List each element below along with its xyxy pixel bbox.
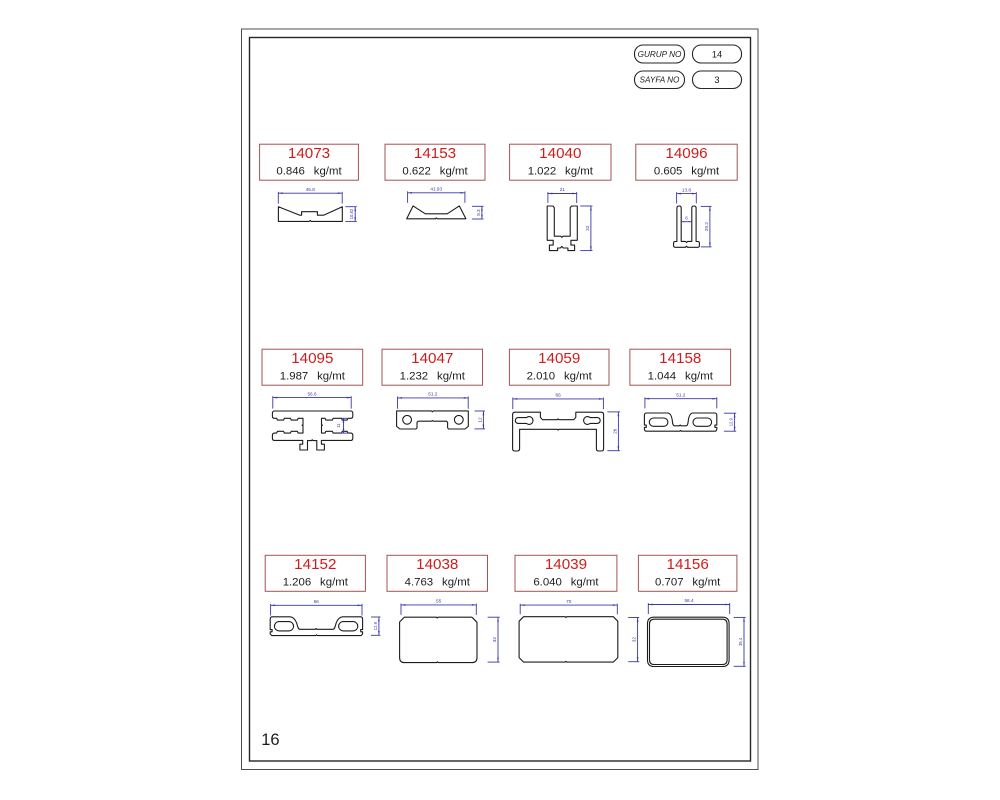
svg-text:0.707 kg/mt: 0.707 kg/mt	[655, 576, 721, 588]
svg-text:32: 32	[585, 225, 590, 231]
svg-text:14059: 14059	[538, 350, 580, 367]
svg-text:66: 66	[555, 393, 561, 398]
svg-text:32: 32	[492, 637, 497, 643]
svg-text:10.82: 10.82	[349, 208, 354, 219]
svg-text:1.044 kg/mt: 1.044 kg/mt	[648, 370, 714, 382]
svg-text:14156: 14156	[667, 556, 709, 573]
svg-text:6.040 kg/mt: 6.040 kg/mt	[533, 576, 599, 588]
svg-text:6: 6	[685, 216, 688, 221]
svg-text:51.2: 51.2	[676, 392, 686, 397]
svg-text:45.8: 45.8	[306, 187, 316, 192]
svg-text:14152: 14152	[294, 556, 336, 573]
svg-text:56.6: 56.6	[307, 391, 317, 396]
svg-text:1.232 kg/mt: 1.232 kg/mt	[400, 370, 466, 382]
svg-text:9.3: 9.3	[476, 209, 481, 216]
svg-text:SAYFA NO: SAYFA NO	[640, 76, 681, 85]
svg-text:35.4: 35.4	[738, 637, 743, 646]
svg-text:29.2: 29.2	[704, 222, 709, 232]
svg-text:51.2: 51.2	[428, 392, 438, 397]
svg-text:12.9: 12.9	[373, 621, 378, 630]
svg-text:1.206 kg/mt: 1.206 kg/mt	[283, 576, 349, 588]
svg-text:14040: 14040	[539, 145, 581, 162]
svg-text:66: 66	[314, 599, 320, 604]
svg-text:1.022 kg/mt: 1.022 kg/mt	[528, 165, 594, 177]
svg-text:13.8: 13.8	[682, 187, 692, 192]
svg-text:0.622 kg/mt: 0.622 kg/mt	[402, 165, 468, 177]
svg-text:14039: 14039	[545, 556, 587, 573]
svg-text:14073: 14073	[288, 145, 330, 162]
svg-text:4.763 kg/mt: 4.763 kg/mt	[405, 576, 471, 588]
svg-text:2.010 kg/mt: 2.010 kg/mt	[527, 370, 593, 382]
svg-text:14047: 14047	[411, 350, 453, 367]
svg-text:14153: 14153	[414, 145, 456, 162]
svg-text:12: 12	[477, 417, 482, 423]
svg-text:14: 14	[712, 49, 722, 59]
svg-text:3: 3	[714, 75, 719, 85]
svg-text:32: 32	[632, 637, 637, 643]
svg-text:14096: 14096	[665, 145, 707, 162]
svg-text:11: 11	[336, 423, 341, 428]
svg-text:0.846 kg/mt: 0.846 kg/mt	[276, 165, 342, 177]
svg-text:14158: 14158	[659, 350, 701, 367]
svg-text:26: 26	[612, 428, 617, 434]
svg-text:14095: 14095	[291, 350, 333, 367]
svg-text:41.93: 41.93	[430, 187, 442, 192]
svg-text:55: 55	[436, 599, 442, 604]
svg-text:21: 21	[560, 187, 566, 192]
svg-text:0.605 kg/mt: 0.605 kg/mt	[654, 165, 720, 177]
svg-text:GURUP NO: GURUP NO	[638, 50, 682, 59]
svg-text:58.4: 58.4	[684, 598, 694, 603]
svg-text:70: 70	[566, 599, 572, 604]
svg-text:16: 16	[261, 731, 279, 749]
svg-text:12.9: 12.9	[729, 417, 734, 426]
svg-text:14038: 14038	[416, 556, 458, 573]
svg-text:1.987 kg/mt: 1.987 kg/mt	[280, 370, 346, 382]
